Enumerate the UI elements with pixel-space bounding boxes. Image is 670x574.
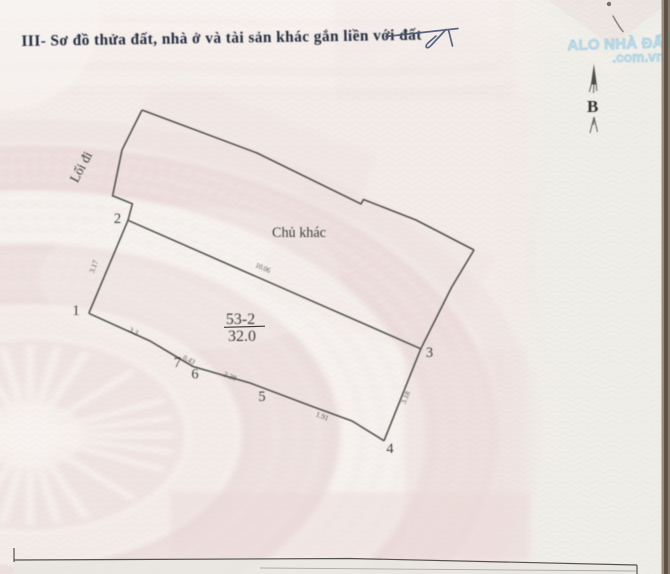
svg-text:7: 7 [174,355,181,371]
svg-text:6: 6 [191,367,198,383]
svg-text:5: 5 [258,389,265,405]
svg-text:B: B [587,97,598,116]
svg-text:32.0: 32.0 [228,328,256,345]
svg-text:3: 3 [426,345,433,361]
svg-text:2: 2 [114,211,121,227]
svg-text:Chủ khác: Chủ khác [272,225,326,241]
svg-text:1: 1 [72,303,79,319]
svg-text:.com.vn: .com.vn [612,49,665,65]
svg-text:4: 4 [386,441,394,457]
svg-text:53-2: 53-2 [226,311,255,328]
